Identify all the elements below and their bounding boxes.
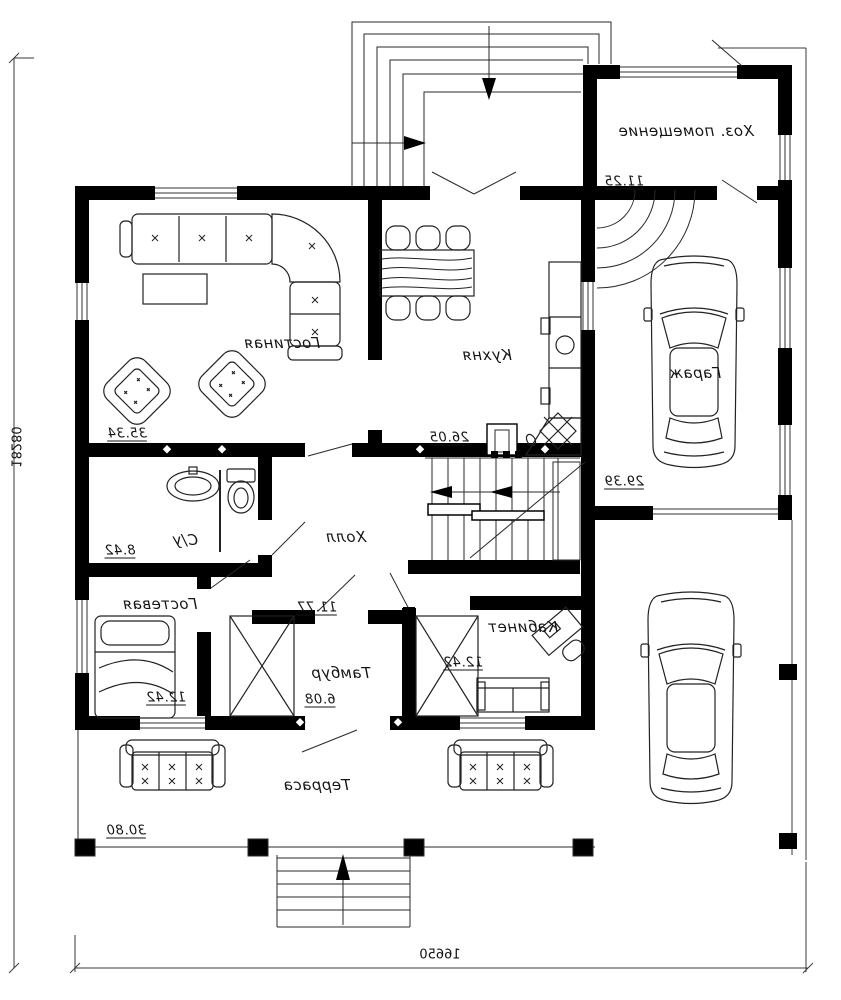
floor-plan-drawing (0, 0, 841, 1000)
room-label-garage: Гараж (669, 364, 721, 382)
room-label-living-room: Гостиная (244, 334, 320, 352)
walls (75, 65, 797, 849)
room-label-kitchen: Кухня (462, 346, 512, 364)
floor-plan: Гостиная 35.34 Кухня 26.05 Холл 11.77 С/… (0, 0, 841, 1000)
room-label-kabinet: Кабинет (488, 618, 558, 636)
room-area-kitchen: 26.05 (429, 431, 469, 446)
room-area-tambour: 6.08 (305, 693, 336, 708)
room-area-guest-room: 12.42 (146, 691, 186, 706)
room-area-garage: 29.39 (604, 475, 644, 490)
room-label-bathroom: С/у (172, 531, 198, 549)
front-entrance-steps (277, 854, 410, 927)
dimension-width: 16650 (419, 948, 460, 963)
room-area-utility-room: 11.25 (604, 175, 644, 190)
room-area-bathroom: 8.42 (105, 544, 136, 559)
room-label-terrace: Терраса (283, 776, 351, 794)
room-label-utility-room: Хоз. помещение (618, 122, 754, 140)
furniture-kitchen (380, 226, 581, 455)
room-area-kabinet: 12.42 (443, 656, 483, 671)
car-in-garage (644, 256, 744, 468)
furniture-living-room (99, 214, 342, 429)
room-label-hall: Холл (326, 528, 367, 546)
back-porch-steps (352, 22, 611, 186)
windows (77, 67, 790, 728)
room-area-hall: 11.77 (297, 601, 337, 616)
room-area-terrace: 30.80 (106, 824, 146, 839)
room-label-tambour: Тамбур (311, 664, 371, 682)
garage-arcs (597, 190, 695, 288)
room-label-guest-room: Гостевая (123, 595, 198, 613)
dimension-height: 18280 (8, 426, 23, 467)
car-driveway (641, 592, 741, 804)
room-area-living-room: 35.34 (107, 427, 147, 442)
staircase (425, 458, 585, 560)
